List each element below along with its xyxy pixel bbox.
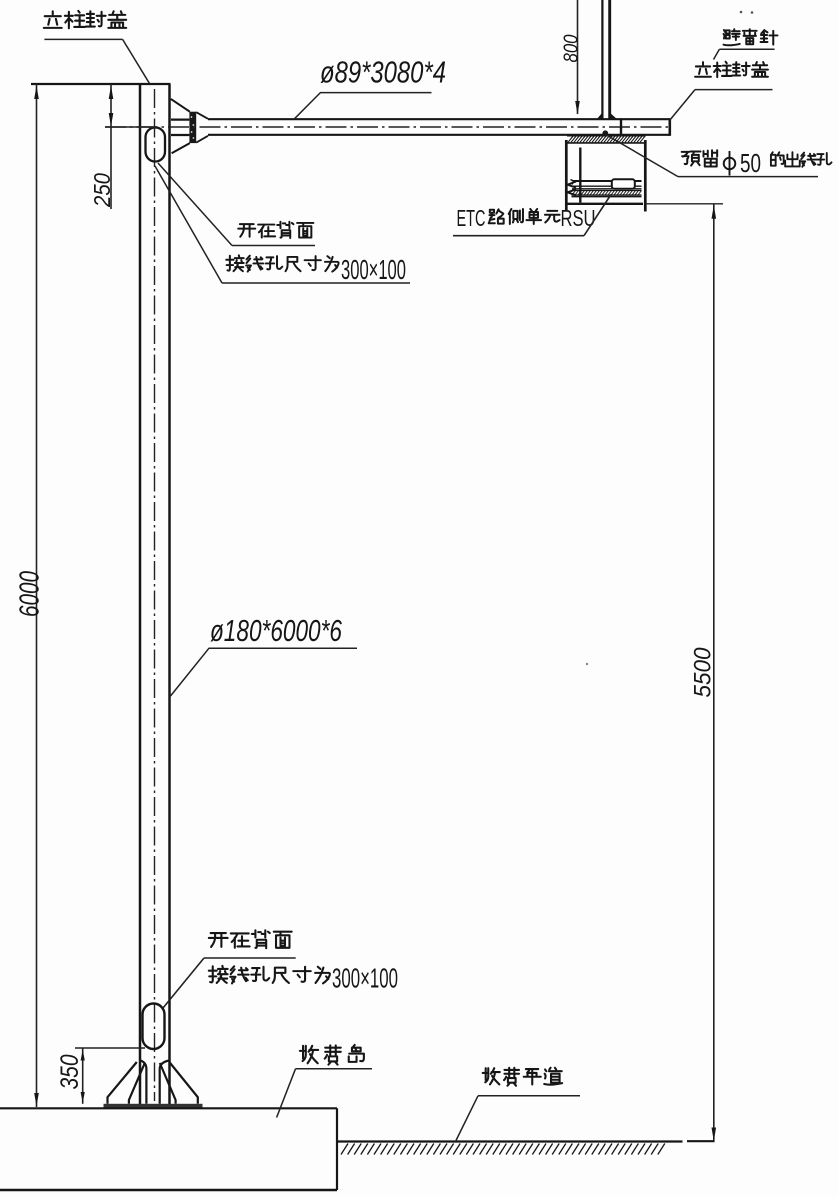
svg-text:ø89*3080*4: ø89*3080*4 (320, 55, 446, 90)
svg-text:300×100: 300×100 (332, 963, 398, 994)
svg-text:ø180*6000*6: ø180*6000*6 (210, 613, 343, 648)
svg-text:ETC: ETC (457, 205, 486, 231)
svg-text:350: 350 (56, 1054, 84, 1089)
svg-text:6000: 6000 (14, 571, 45, 617)
svg-text:800: 800 (561, 35, 583, 63)
svg-text:300×100: 300×100 (341, 254, 406, 285)
svg-text:50: 50 (740, 148, 761, 178)
svg-text:5500: 5500 (690, 647, 717, 698)
svg-text:250: 250 (89, 173, 115, 208)
